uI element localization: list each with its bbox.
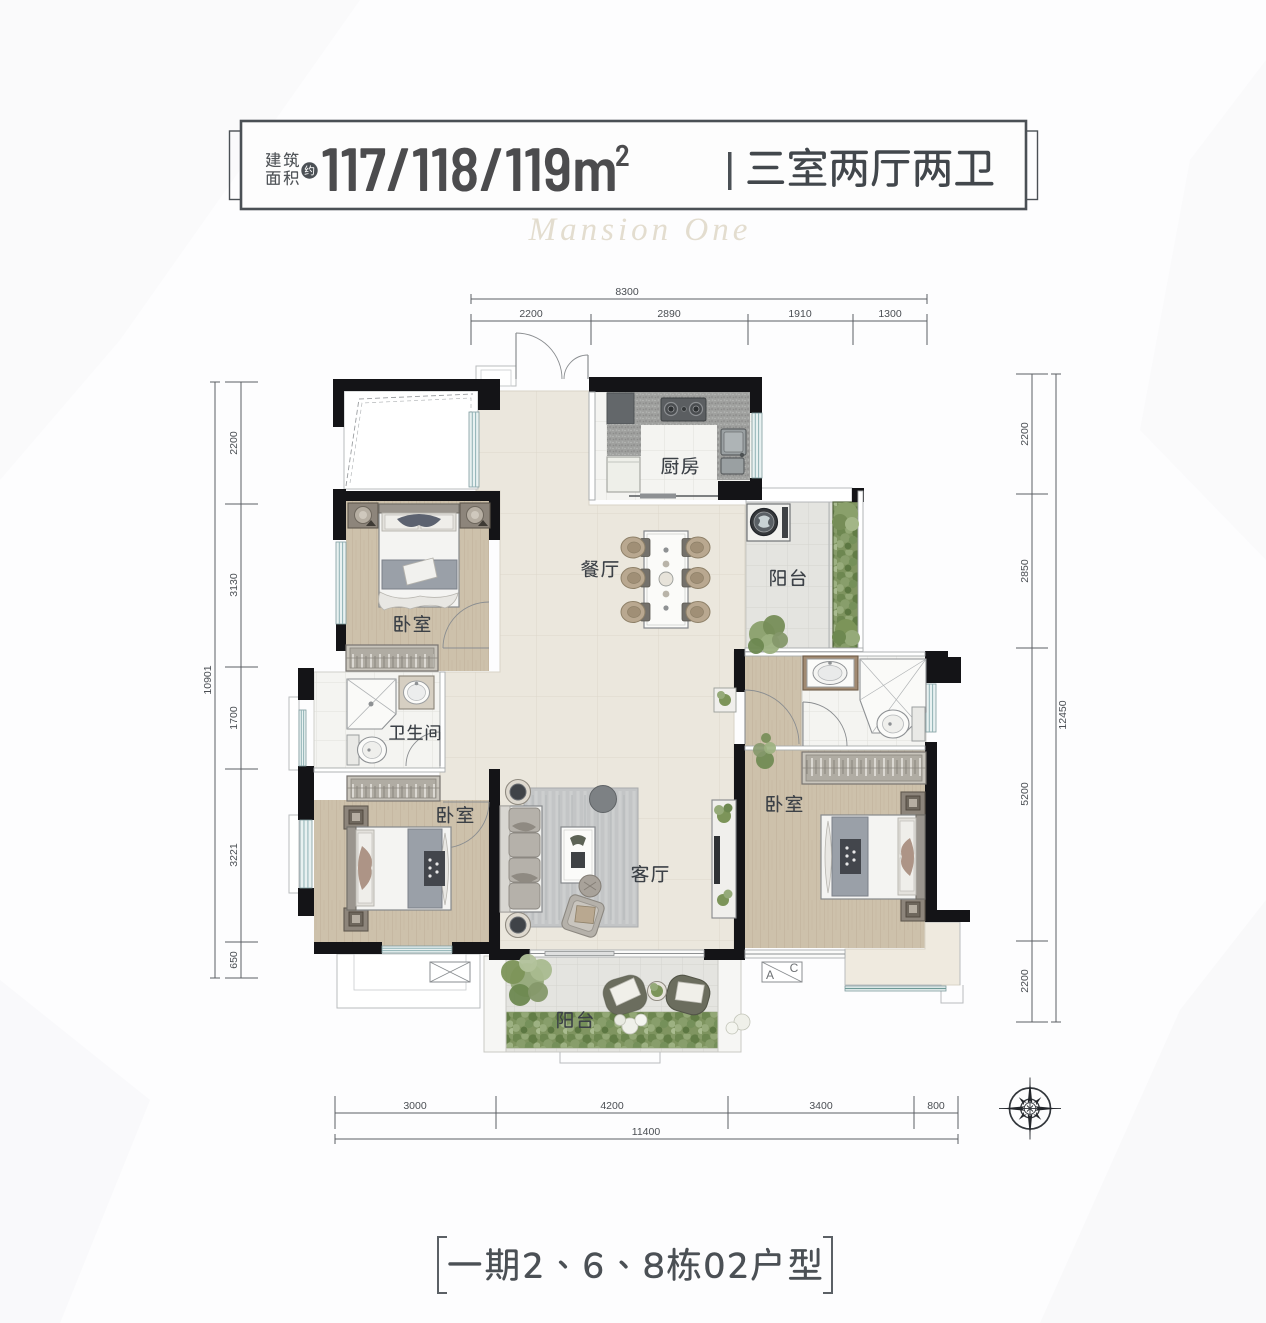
svg-text:11400: 11400 [632,1126,661,1138]
svg-text:3221: 3221 [228,843,240,867]
svg-text:5200: 5200 [1019,782,1031,806]
svg-text:4200: 4200 [600,1100,624,1112]
svg-text:1700: 1700 [228,706,240,730]
svg-text:2200: 2200 [519,308,543,320]
svg-text:3130: 3130 [228,573,240,597]
svg-text:12450: 12450 [1057,700,1069,729]
svg-text:650: 650 [228,951,240,969]
svg-text:A: A [766,968,774,982]
svg-text:3000: 3000 [403,1100,427,1112]
svg-text:C: C [790,961,799,975]
svg-text:2200: 2200 [1019,422,1031,446]
svg-text:1300: 1300 [878,308,902,320]
svg-text:3400: 3400 [809,1100,833,1112]
svg-text:2200: 2200 [228,431,240,455]
svg-text:2850: 2850 [1019,559,1031,583]
svg-text:Mansion One: Mansion One [528,212,752,248]
svg-text:10901: 10901 [202,665,214,694]
svg-text:2890: 2890 [657,308,681,320]
svg-text:1910: 1910 [788,308,812,320]
svg-text:8300: 8300 [615,286,639,298]
svg-text:2200: 2200 [1019,969,1031,993]
svg-text:800: 800 [927,1100,945,1112]
